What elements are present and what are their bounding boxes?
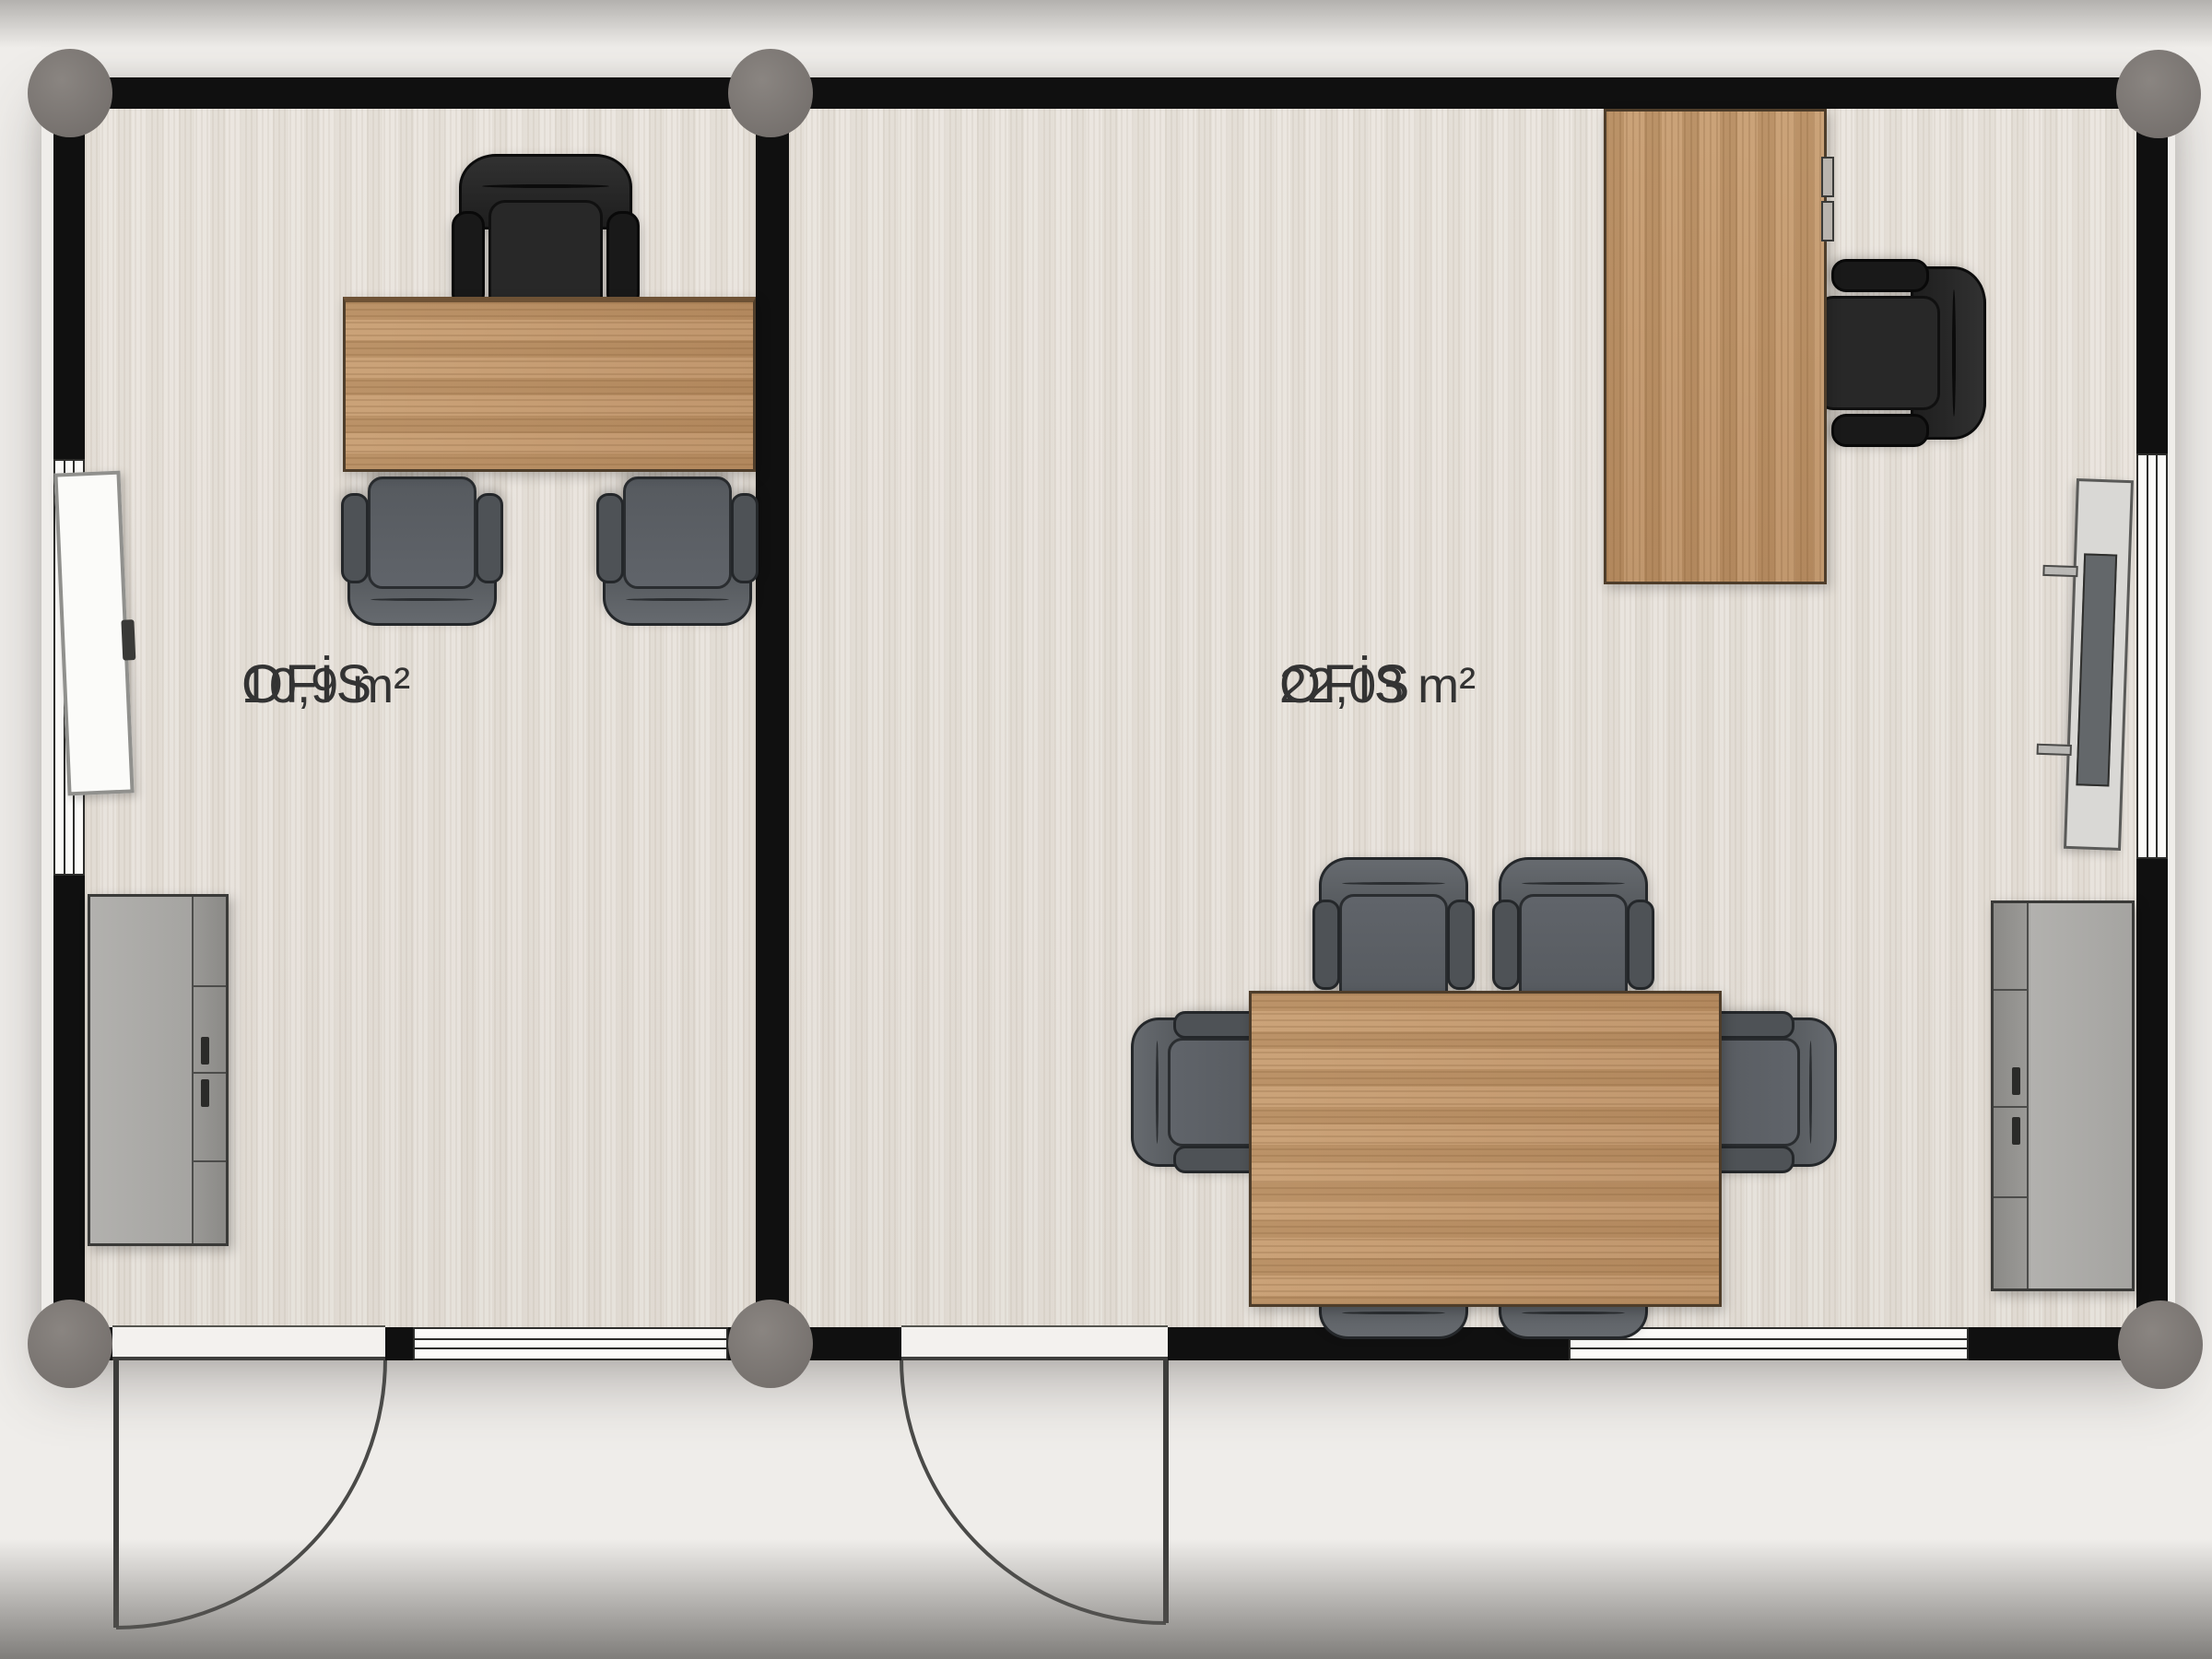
- chair-armrest: [731, 493, 759, 583]
- wall-interior: [756, 88, 789, 1346]
- window-mullion: [415, 1347, 726, 1349]
- chair-armrest: [1447, 900, 1475, 990]
- tv-panel: [2076, 553, 2117, 786]
- window-right-wall: [2136, 453, 2168, 859]
- cabinet-seam: [1994, 989, 2029, 991]
- chair-armrest: [1831, 414, 1929, 447]
- cabinet-front: [90, 897, 192, 1243]
- window-bottom-left: [413, 1327, 728, 1360]
- cabinet-seam: [1994, 1196, 2029, 1198]
- desk-handle: [1821, 157, 1834, 197]
- chair-armrest: [452, 211, 485, 309]
- office-desk: [1604, 109, 1827, 584]
- cabinet-seam: [192, 1160, 226, 1162]
- tv-mount: [2042, 565, 2077, 577]
- chair-seam: [1522, 1312, 1625, 1314]
- guest-chair: [344, 469, 500, 626]
- room-area: 22,03 m²: [1279, 651, 1476, 721]
- chair-armrest: [341, 493, 369, 583]
- cabinet-handle: [201, 1037, 209, 1065]
- corner-post: [728, 49, 813, 137]
- corner-post: [28, 1300, 112, 1388]
- wall-right-upper: [2136, 88, 2168, 453]
- corner-post: [28, 49, 112, 137]
- chair-armrest: [1312, 900, 1340, 990]
- chair-armrest: [1492, 900, 1520, 990]
- cabinet-front: [2030, 903, 2132, 1288]
- whiteboard: [53, 471, 134, 796]
- wall-left-lower: [53, 876, 85, 1359]
- chair-armrest: [606, 211, 640, 309]
- whiteboard-handle: [121, 619, 135, 661]
- cabinet-seam: [192, 1072, 226, 1074]
- corner-post: [2116, 50, 2201, 138]
- chair-seam: [371, 598, 474, 601]
- bottom-vignette: [0, 1539, 2212, 1659]
- corner-post: [2118, 1300, 2203, 1389]
- chair-seat: [1519, 894, 1628, 1006]
- cabinet-handle: [2012, 1117, 2020, 1145]
- room-area: 10,9 m²: [241, 651, 410, 721]
- chair-seam: [1952, 289, 1956, 417]
- chair-armrest: [476, 493, 503, 583]
- floor-plan-canvas: OFİS 10,9 m² OFİS 22,03 m²: [0, 0, 2212, 1659]
- door-opening-left: [112, 1325, 385, 1360]
- storage-cabinet: [88, 894, 229, 1246]
- chair-seam: [482, 184, 609, 188]
- wall-top: [41, 77, 2175, 109]
- cabinet-side: [192, 897, 226, 1243]
- cabinet-side: [1994, 903, 2029, 1288]
- cabinet-handle: [201, 1079, 209, 1107]
- chair-seat: [1817, 296, 1940, 410]
- guest-chair: [599, 469, 756, 626]
- door-arc-right: [901, 1359, 1166, 1623]
- window-mullion: [2147, 455, 2148, 857]
- chair-armrest: [1831, 259, 1929, 292]
- desk-handle: [1821, 201, 1834, 241]
- cabinet-handle: [2012, 1067, 2020, 1095]
- window-mullion: [2156, 455, 2158, 857]
- cabinet-seam: [1994, 1106, 2029, 1108]
- executive-chair: [1811, 261, 1986, 445]
- chair-seam: [1809, 1041, 1812, 1144]
- window-mullion: [415, 1338, 726, 1340]
- chair-armrest: [596, 493, 624, 583]
- chair-armrest: [1627, 900, 1654, 990]
- chair-seat: [1339, 894, 1448, 1006]
- wall-bottom-seg-b: [385, 1327, 413, 1360]
- chair-seam: [1156, 1041, 1159, 1144]
- chair-seam: [1522, 882, 1625, 885]
- chair-seat: [368, 477, 477, 589]
- chair-seam: [1342, 882, 1445, 885]
- cabinet-seam: [192, 985, 226, 987]
- meeting-table: [1249, 991, 1722, 1307]
- chair-seam: [1342, 1312, 1445, 1314]
- chair-seat: [623, 477, 732, 589]
- tv-mount: [2037, 744, 2072, 756]
- window-mullion: [1571, 1347, 1967, 1349]
- door-opening-right: [901, 1325, 1168, 1360]
- wall-left-upper: [53, 88, 85, 459]
- top-vignette: [0, 0, 2212, 48]
- chair-seam: [626, 598, 729, 601]
- corner-post: [728, 1300, 813, 1388]
- door-arc-left: [116, 1359, 385, 1628]
- office-desk: [343, 297, 756, 472]
- storage-cabinet: [1991, 900, 2135, 1291]
- wall-right-lower: [2136, 859, 2168, 1359]
